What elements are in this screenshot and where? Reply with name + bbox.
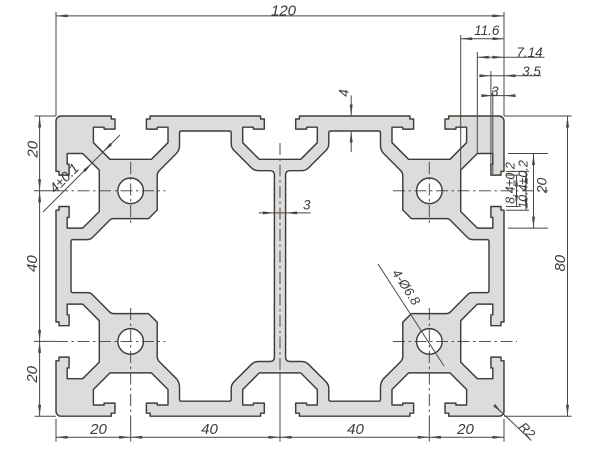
svg-text:40: 40 xyxy=(201,421,218,438)
svg-text:10.4±0.2: 10.4±0.2 xyxy=(517,160,531,209)
svg-text:3.5: 3.5 xyxy=(522,64,541,79)
svg-text:20: 20 xyxy=(456,421,474,438)
svg-text:4: 4 xyxy=(336,89,351,97)
svg-text:80: 80 xyxy=(552,254,569,271)
svg-text:40: 40 xyxy=(24,255,41,272)
svg-text:3: 3 xyxy=(491,84,499,99)
svg-text:20: 20 xyxy=(534,178,550,195)
svg-text:3: 3 xyxy=(303,198,311,213)
svg-text:20: 20 xyxy=(24,140,41,158)
svg-text:20: 20 xyxy=(24,365,41,383)
svg-text:8.4±0.2: 8.4±0.2 xyxy=(504,162,518,204)
svg-text:7.14: 7.14 xyxy=(516,45,542,60)
svg-text:120: 120 xyxy=(271,3,297,20)
svg-text:40: 40 xyxy=(347,421,364,438)
svg-text:R2: R2 xyxy=(516,419,539,442)
svg-text:11.6: 11.6 xyxy=(474,23,500,38)
svg-text:20: 20 xyxy=(89,421,107,438)
